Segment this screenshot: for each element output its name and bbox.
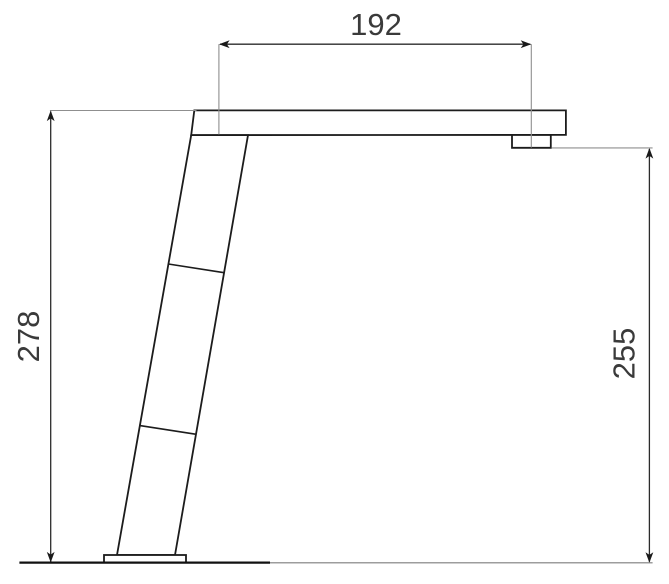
svg-text:192: 192 [350,7,402,42]
svg-text:255: 255 [607,328,642,380]
svg-text:278: 278 [11,311,46,363]
